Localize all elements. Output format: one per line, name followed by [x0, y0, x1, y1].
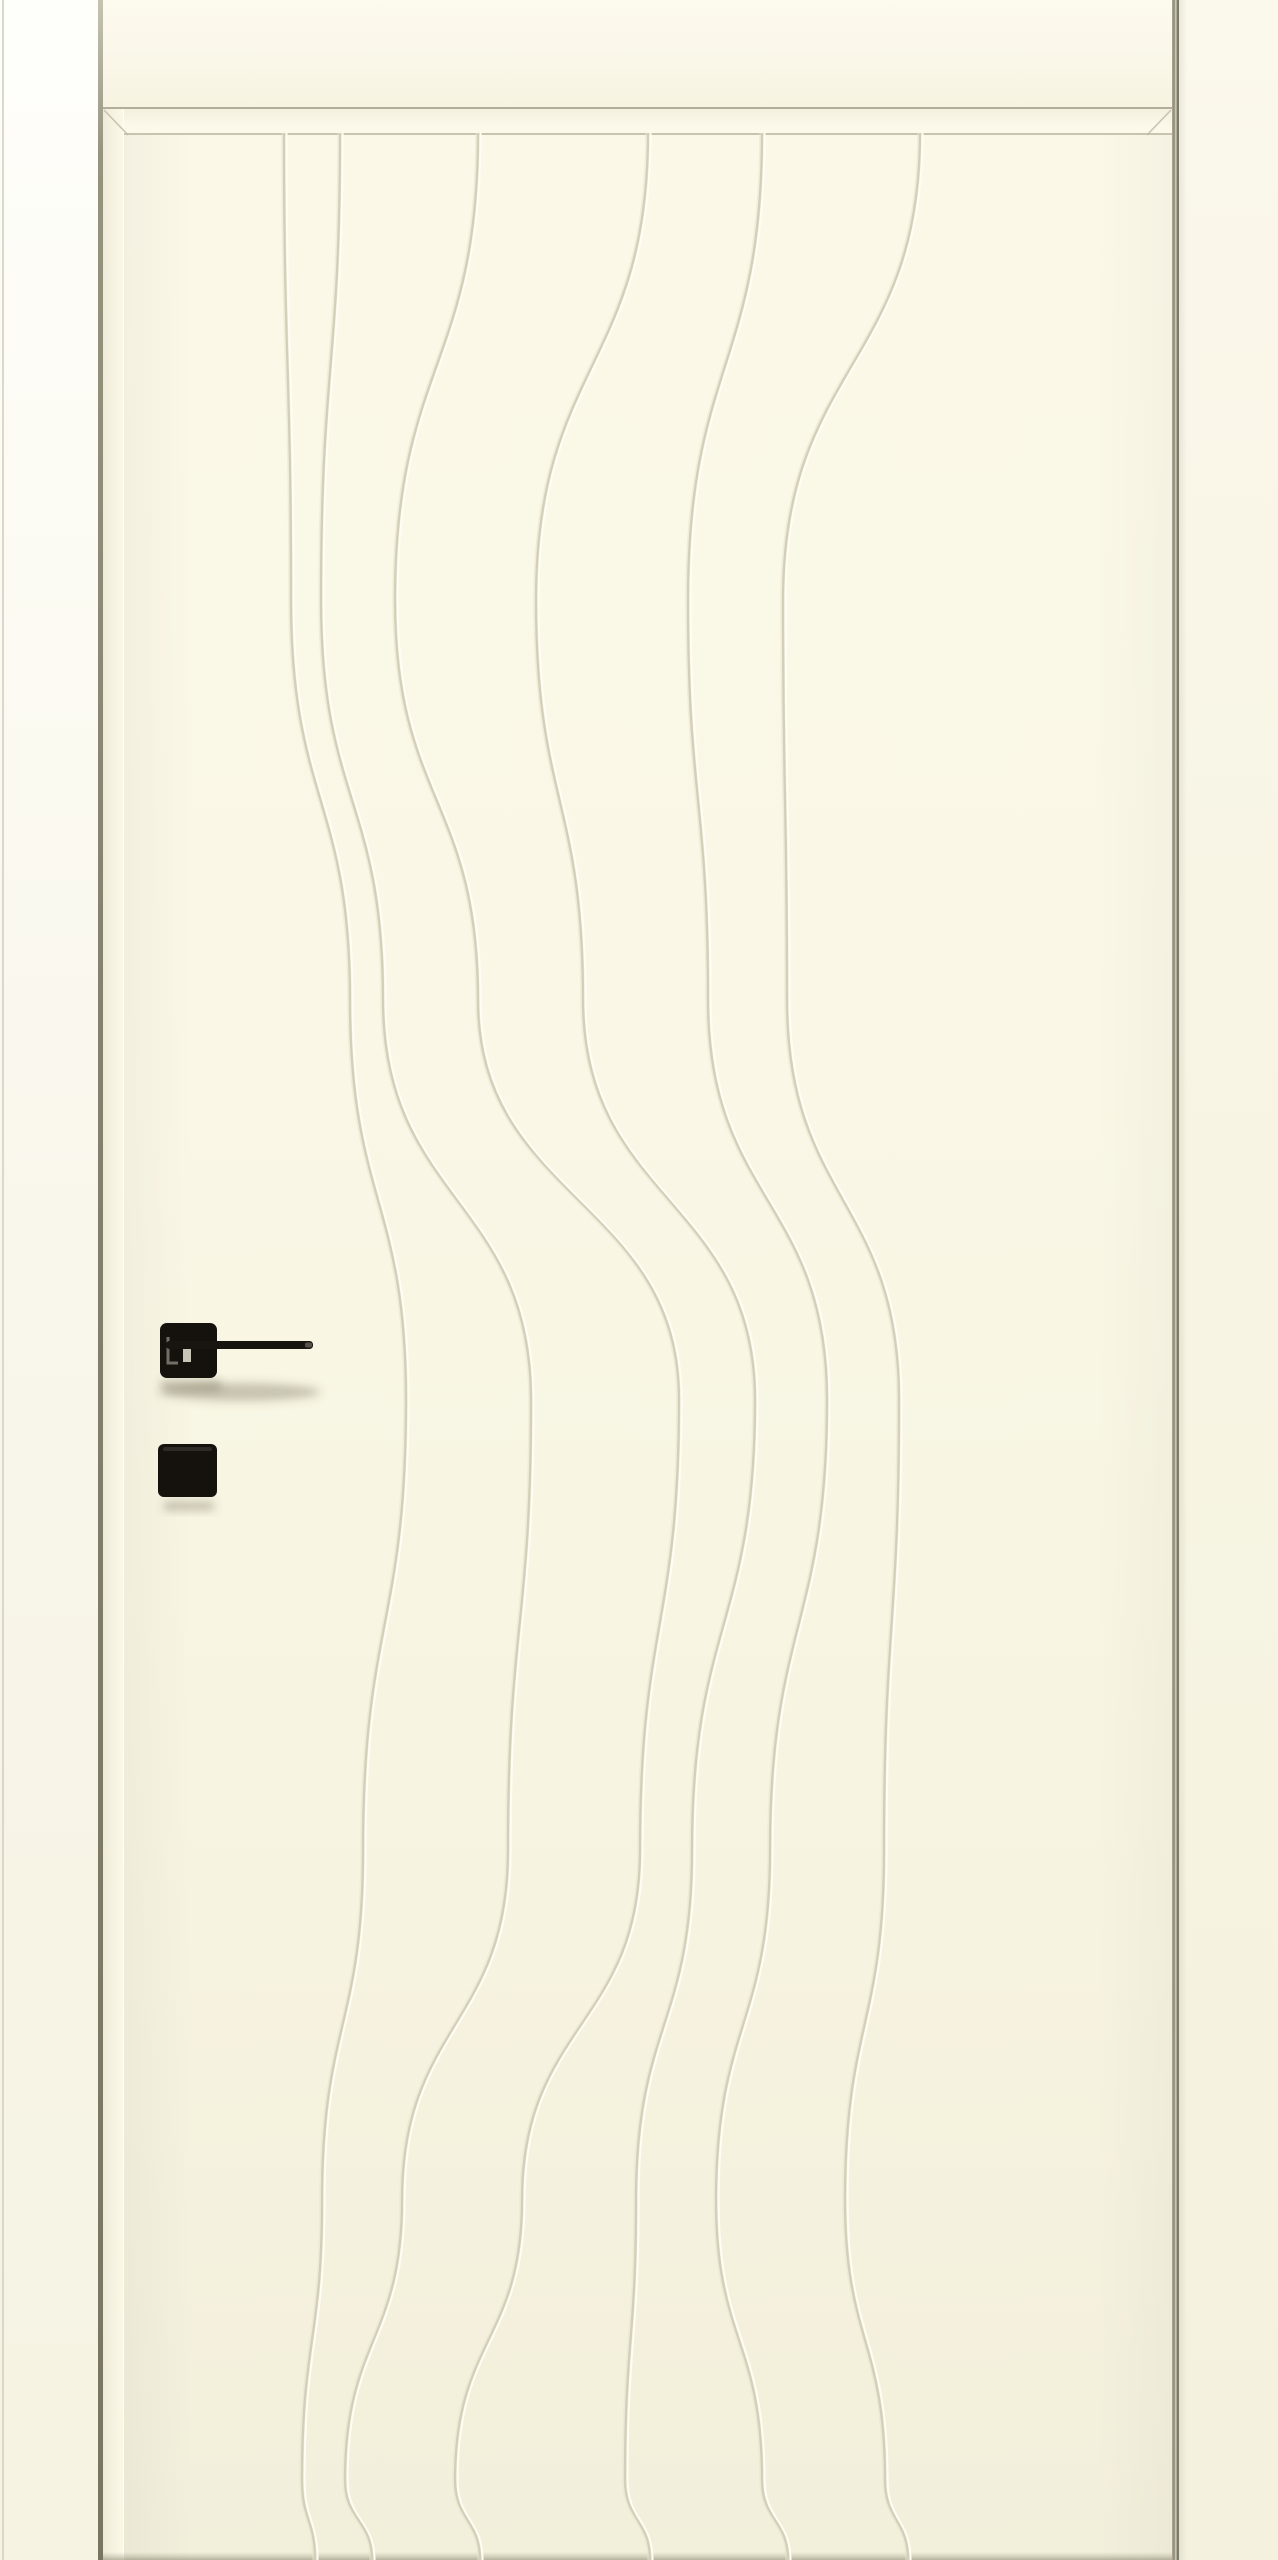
- privacy-escutcheon-group: [158, 1444, 217, 1511]
- top-left-miter-line: [104, 110, 128, 135]
- wave-grooves-highlight: [287, 133, 923, 2560]
- wave-groove-path: [536, 133, 755, 2560]
- rosette-highlight-notch: [183, 1349, 191, 1362]
- wave-groove-path: [786, 133, 923, 2560]
- wave-groove-path: [324, 133, 534, 2560]
- door-product-photo: [0, 0, 1278, 2560]
- wave-groove-path: [688, 133, 827, 2560]
- wave-groove-path: [688, 133, 827, 2560]
- wave-groove-path: [691, 133, 830, 2560]
- wave-groove-path: [321, 133, 531, 2560]
- wave-groove-path: [321, 133, 531, 2560]
- handle-lever: [166, 1341, 313, 1349]
- privacy-escutcheon: [158, 1444, 217, 1497]
- wave-grooves-shadow: [284, 133, 920, 2560]
- lever-tip-highlight: [305, 1343, 312, 1348]
- rosette-shadow: [160, 1380, 222, 1391]
- escutcheon-reflection: [163, 1447, 212, 1451]
- escutcheon-shadow: [163, 1501, 215, 1511]
- decor-overlay: [0, 0, 1278, 2560]
- door-handle-group: [160, 1323, 320, 1401]
- wave-groove-path: [539, 133, 758, 2560]
- top-right-miter-line: [1147, 110, 1171, 135]
- wave-groove-path: [536, 133, 755, 2560]
